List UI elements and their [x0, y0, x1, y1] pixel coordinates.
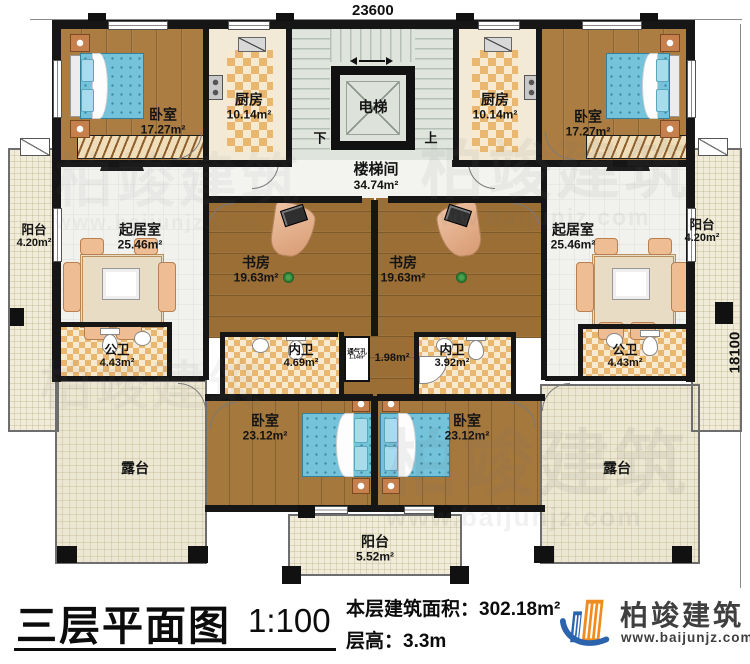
room-label-bedroom-top-left: 卧室17.27m²	[141, 107, 186, 136]
wall-segment	[52, 160, 292, 167]
nightstand	[382, 478, 400, 494]
wall-segment	[220, 332, 225, 398]
floor-plan-drawing: 23600 18100	[0, 0, 750, 590]
window	[53, 60, 62, 118]
room-label-bath-public-left: 公卫4.43m²	[100, 343, 135, 369]
wall-segment	[172, 376, 205, 381]
room-label-living-right: 起居室25.46m²	[551, 222, 596, 251]
sofa-seat	[80, 238, 104, 255]
elevator-label: 电梯	[359, 100, 388, 116]
floor-area-line: 本层建筑面积：302.18m²	[346, 594, 560, 621]
column	[10, 308, 24, 326]
nightstand	[660, 34, 680, 52]
sofa-seat	[158, 262, 176, 312]
coffee-table	[612, 268, 650, 300]
room-label-terrace-left: 露台	[121, 461, 149, 477]
toilet	[468, 340, 484, 360]
nightstand	[352, 478, 370, 494]
bed-double	[380, 413, 448, 475]
wall-segment	[371, 396, 378, 512]
room-label-balcony-left: 阳台4.20m²	[17, 223, 52, 249]
wall-stub	[434, 505, 451, 518]
toilet	[642, 336, 658, 356]
sofa-seat	[594, 238, 618, 255]
sofa-seat	[63, 262, 81, 312]
plan-title: 三层平面图	[16, 592, 231, 652]
wall-segment	[205, 394, 373, 401]
room-label-balcony-bottom: 阳台5.52m²	[356, 534, 394, 563]
sink	[252, 338, 269, 353]
wall-segment	[377, 394, 545, 401]
wall-segment	[545, 376, 578, 381]
wall-segment	[453, 26, 459, 162]
wall-segment	[686, 164, 695, 382]
top-dimension-label: 23600	[352, 2, 394, 19]
stove	[208, 75, 223, 100]
coffee-table	[102, 268, 140, 300]
title-block: 三层平面图 1:100 本层建筑面积：302.18m² 层高：3.3m 柏竣建筑…	[0, 588, 750, 664]
ac-platform	[20, 138, 50, 156]
window	[478, 21, 520, 30]
wall-segment	[377, 505, 545, 512]
kitchen-sink	[238, 37, 266, 52]
wardrobe	[586, 135, 692, 159]
bed-double	[70, 52, 142, 118]
wall-segment	[371, 200, 378, 336]
room-label-study-left: 书房19.63m²	[234, 255, 279, 284]
wall-stub	[298, 505, 315, 518]
wall-segment	[414, 332, 419, 398]
wall-segment	[578, 324, 695, 329]
stair-up-label: 上	[424, 132, 437, 147]
wall-segment	[414, 332, 516, 337]
window	[228, 21, 270, 30]
wall-segment	[205, 196, 362, 203]
right-dimension-label: 18100	[726, 332, 743, 374]
column	[188, 546, 208, 563]
sofa-seat	[648, 238, 672, 255]
window	[108, 21, 168, 30]
stair-flight-top	[330, 28, 415, 62]
plant	[283, 272, 294, 283]
balcony-door-window	[53, 208, 62, 262]
wall-segment	[578, 324, 583, 381]
wall-stub	[456, 13, 474, 21]
stair-down-label: 下	[313, 132, 326, 147]
column	[534, 546, 554, 563]
stairwell-label: 楼梯间34.74m²	[353, 162, 398, 192]
bed-double	[302, 413, 370, 475]
room-label-kitchen-left: 厨房10.14m²	[227, 92, 272, 121]
bath-inner-left-floor	[222, 334, 340, 400]
column	[57, 546, 77, 563]
column	[450, 566, 469, 584]
ac-platform	[698, 138, 728, 156]
column	[672, 546, 692, 563]
vent-label: 通气孔1.14m²	[347, 349, 367, 362]
room-label-balcony-right: 阳台4.20m²	[685, 218, 720, 244]
wall-segment	[286, 26, 292, 162]
wall-stub	[88, 13, 106, 21]
plan-scale: 1:100	[248, 602, 331, 640]
building-swoosh-icon	[558, 592, 616, 650]
column	[715, 302, 733, 324]
nightstand	[70, 34, 90, 52]
wall-segment	[52, 376, 172, 381]
wall-segment	[52, 322, 172, 327]
wall-segment	[511, 332, 516, 398]
floor-plan-page: 23600 18100	[0, 0, 750, 664]
room-label-kitchen-right: 厨房10.14m²	[473, 92, 518, 121]
wall-stub	[640, 13, 658, 21]
wall-segment	[220, 332, 338, 337]
logo-site: www.baijunjz.com	[621, 630, 750, 645]
wall-segment	[536, 26, 542, 162]
wall-stub	[276, 13, 294, 21]
wall-segment	[52, 164, 61, 382]
room-label-bedroom-top-right: 卧室17.27m²	[566, 109, 611, 138]
stair-direction-arrow-right	[386, 57, 393, 65]
wall-segment	[452, 160, 695, 167]
room-label-bath-inner-right: 内卫3.92m²	[435, 343, 470, 369]
nightstand	[660, 120, 680, 138]
room-label-bedroom-bottom-right: 卧室23.12m²	[445, 413, 490, 442]
room-label-study-right: 书房19.63m²	[381, 255, 426, 284]
title-underline	[14, 648, 336, 651]
vent-shaft-area-label: 1.98m²	[375, 352, 410, 364]
logo-name: 柏竣建筑	[620, 594, 744, 634]
stair-direction-arrow-left	[350, 57, 357, 65]
window	[687, 60, 696, 118]
nightstand	[70, 120, 90, 138]
column	[282, 566, 301, 584]
sofa-seat	[576, 262, 594, 312]
room-label-living-left: 起居室25.46m²	[118, 222, 163, 251]
company-logo: 柏竣建筑 www.baijunjz.com	[558, 590, 748, 662]
sink	[134, 331, 151, 346]
bed-double	[606, 52, 678, 118]
wall-segment	[167, 322, 172, 381]
kitchen-sink	[484, 37, 512, 52]
window	[582, 21, 642, 30]
room-label-bath-inner-left: 内卫4.69m²	[284, 343, 319, 369]
room-label-bedroom-bottom-left: 卧室23.12m²	[243, 413, 288, 442]
stair-direction-line	[359, 60, 385, 62]
room-label-terrace-right: 露台	[603, 461, 631, 477]
wall-segment	[578, 376, 695, 381]
plant	[456, 272, 467, 283]
wall-segment	[203, 26, 209, 162]
room-label-bath-public-right: 公卫4.43m²	[608, 343, 643, 369]
floor-height-line: 层高：3.3m	[346, 626, 446, 653]
wall-segment	[388, 196, 545, 203]
